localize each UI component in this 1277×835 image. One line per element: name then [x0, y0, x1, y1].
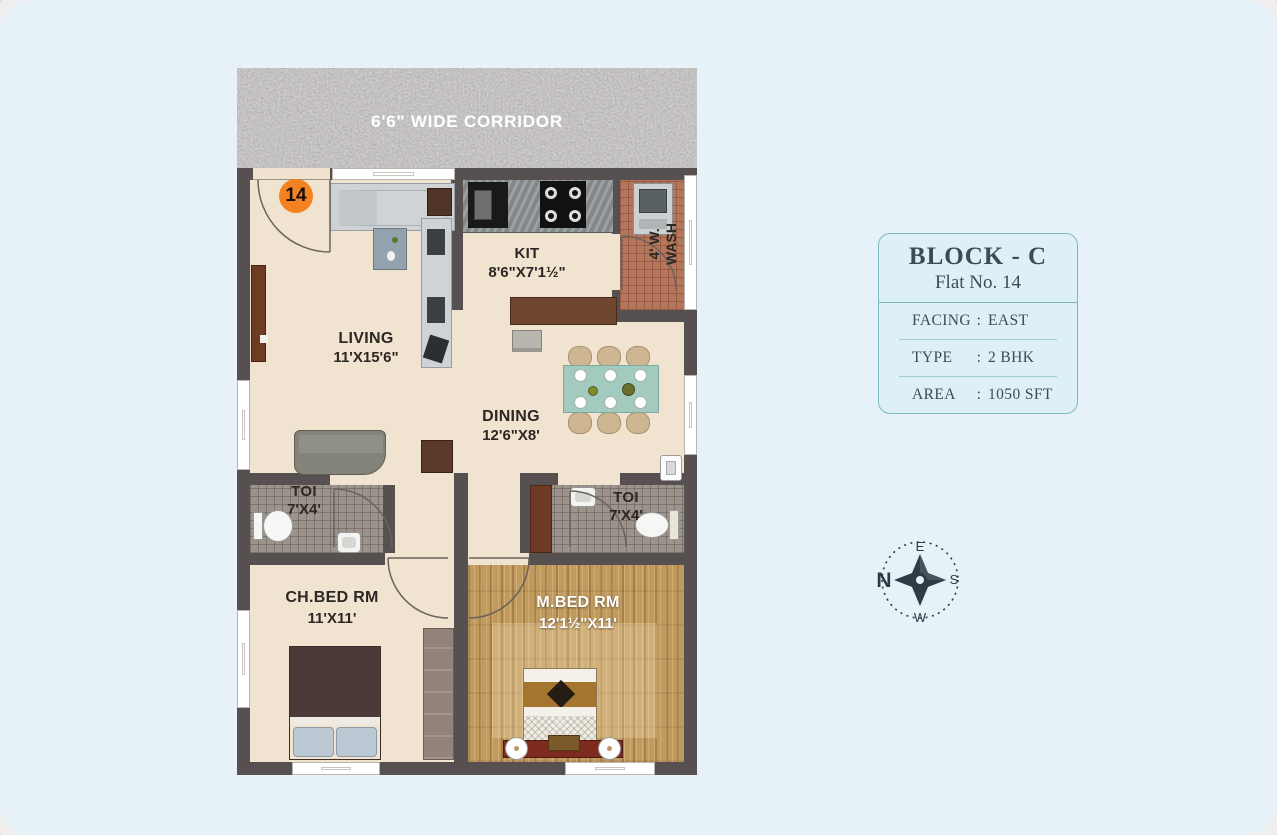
facing-value: EAST: [988, 312, 1028, 330]
block-title: BLOCK - C: [879, 243, 1077, 271]
master-bedroom-label: M.BED RM 12'1½"X11': [536, 592, 619, 634]
child-bedroom-label: CH.BED RM 11'X11': [285, 587, 378, 629]
wash-area-label: 4' W. WASH: [646, 223, 680, 265]
living-room-dims: 11'X15'6": [333, 348, 398, 367]
child-bedroom-door-arc: [388, 558, 448, 618]
toilet-left-name: TOI: [287, 483, 321, 501]
wash-label-line1: 4' W.: [646, 223, 663, 265]
dining-label: DINING 12'6"X8': [482, 407, 540, 445]
toilet-left-dims: 7'X4': [287, 501, 321, 519]
facing-row: FACING : EAST: [879, 303, 1077, 339]
child-bedroom-name: CH.BED RM: [285, 587, 378, 608]
dining-dims: 12'6"X8': [482, 426, 540, 445]
compass-south-label: S: [950, 572, 959, 587]
compass-east-label: E: [916, 539, 925, 554]
type-value: 2 BHK: [988, 349, 1034, 367]
floor-plan: 6'6" WIDE CORRIDOR: [237, 68, 697, 775]
toilet-right-name: TOI: [609, 489, 643, 507]
compass-west-label: W: [914, 610, 927, 625]
master-bedroom-door-arc: [469, 558, 529, 618]
toilet-left-label: TOI 7'X4': [287, 483, 321, 519]
facing-label: FACING: [912, 312, 973, 330]
type-row: TYPE : 2 BHK: [879, 340, 1077, 376]
master-bedroom-dims: 12'1½"X11': [536, 613, 619, 634]
child-bedroom-dims: 11'X11': [285, 608, 378, 629]
toilet-right-label: TOI 7'X4': [609, 489, 643, 525]
flat-number-subtitle: Flat No. 14: [879, 272, 1077, 294]
area-row: AREA : 1050 SFT: [879, 377, 1077, 413]
compass-rose: N E S W: [862, 522, 978, 638]
flat-info-header: BLOCK - C Flat No. 14: [879, 234, 1077, 303]
area-value: 1050 SFT: [988, 386, 1053, 404]
living-room-name: LIVING: [333, 329, 398, 348]
master-bedroom-name: M.BED RM: [536, 592, 619, 613]
toilet-right-dims: 7'X4': [609, 507, 643, 525]
kitchen-label: KIT 8'6"X7'1½": [488, 244, 565, 282]
compass-north-label: N: [876, 569, 891, 592]
wash-label-line2: WASH: [663, 223, 680, 265]
door-swing-overlay: [237, 68, 697, 775]
living-room-label: LIVING 11'X15'6": [333, 329, 398, 367]
facing-separator: :: [973, 312, 985, 330]
flat-info-card: BLOCK - C Flat No. 14 FACING : EAST TYPE…: [878, 233, 1078, 414]
page-background: 6'6" WIDE CORRIDOR: [0, 0, 1277, 835]
kitchen-name: KIT: [488, 244, 565, 263]
toilet-left-door-arc: [334, 489, 392, 547]
type-label: TYPE: [912, 349, 973, 367]
dining-name: DINING: [482, 407, 540, 426]
type-separator: :: [973, 349, 985, 367]
flat-number-badge: 14: [279, 179, 313, 213]
kitchen-dims: 8'6"X7'1½": [488, 263, 565, 282]
area-label: AREA: [912, 386, 973, 404]
area-separator: :: [973, 386, 985, 404]
compass-hub: [915, 575, 926, 586]
